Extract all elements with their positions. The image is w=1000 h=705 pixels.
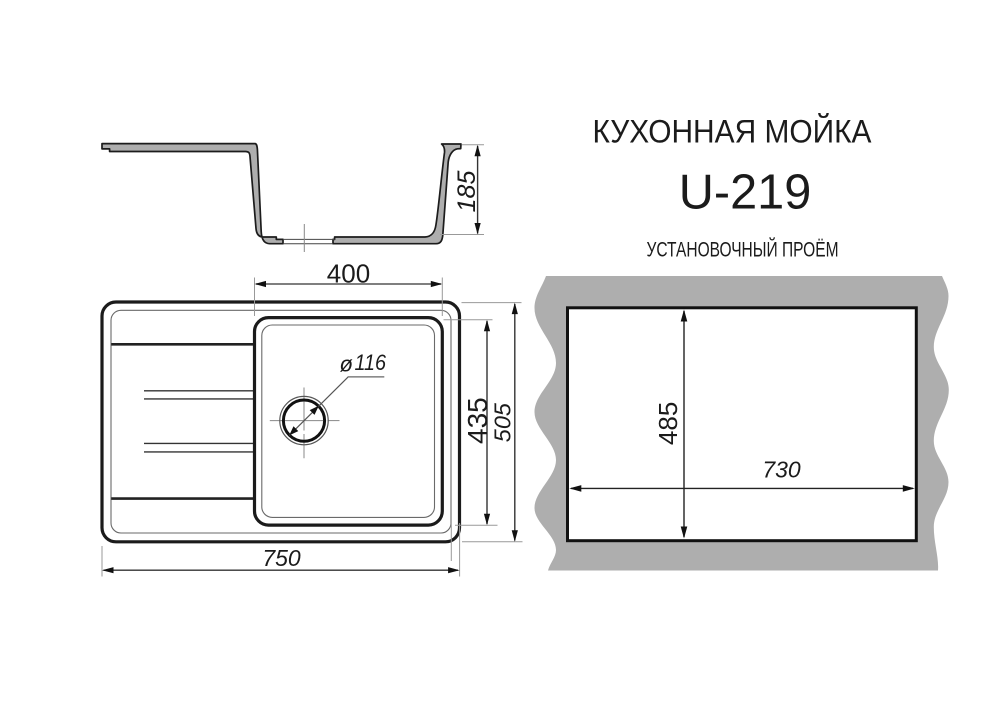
svg-text:116: 116 (355, 350, 387, 375)
svg-text:ø: ø (340, 352, 353, 377)
svg-text:730: 730 (762, 457, 801, 483)
svg-text:КУХОННАЯ МОЙКА: КУХОННАЯ МОЙКА (593, 112, 872, 149)
svg-text:750: 750 (262, 545, 301, 571)
svg-text:400: 400 (327, 258, 370, 288)
svg-text:УСТАНОВОЧНЫЙ ПРОЁМ: УСТАНОВОЧНЫЙ ПРОЁМ (647, 237, 839, 262)
svg-text:505: 505 (490, 402, 516, 442)
svg-text:185: 185 (453, 171, 481, 213)
svg-text:485: 485 (653, 402, 683, 445)
svg-text:435: 435 (462, 397, 493, 444)
svg-text:U-219: U-219 (679, 165, 812, 220)
